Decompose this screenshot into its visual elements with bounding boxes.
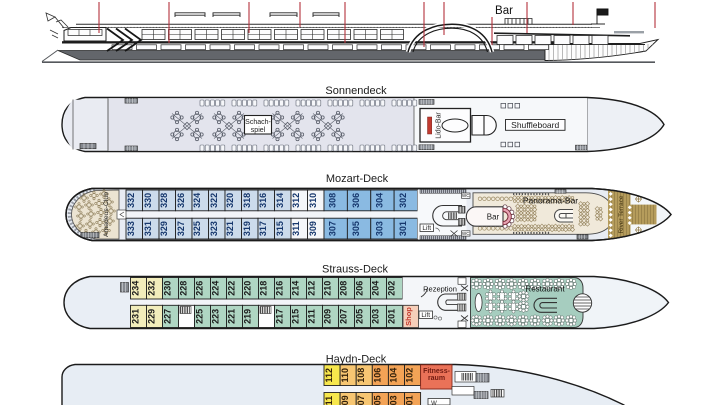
svg-text:104: 104 [388, 368, 398, 383]
svg-text:327: 327 [176, 221, 186, 236]
svg-text:310: 310 [308, 193, 318, 208]
svg-text:328: 328 [159, 193, 169, 208]
svg-text:Rezeption: Rezeption [423, 284, 457, 293]
svg-text:218: 218 [259, 281, 269, 296]
svg-text:103: 103 [388, 395, 398, 405]
svg-text:Shuffleboard: Shuffleboard [511, 120, 559, 130]
svg-text:Bar: Bar [487, 213, 500, 222]
svg-text:224: 224 [211, 281, 221, 296]
svg-text:Restaurant: Restaurant [525, 285, 565, 294]
svg-text:223: 223 [211, 309, 221, 324]
svg-text:208: 208 [339, 281, 349, 296]
svg-text:305: 305 [351, 221, 361, 236]
svg-text:220: 220 [243, 281, 253, 296]
svg-text:214: 214 [291, 281, 301, 296]
svg-text:230: 230 [163, 281, 173, 296]
svg-text:333: 333 [126, 221, 136, 236]
svg-text:raum: raum [428, 375, 445, 382]
svg-text:101: 101 [405, 395, 415, 405]
svg-text:322: 322 [209, 193, 219, 208]
svg-text:Amadeus-Club: Amadeus-Club [103, 192, 110, 237]
svg-text:234: 234 [131, 281, 141, 296]
svg-text:323: 323 [209, 221, 219, 236]
svg-text:205: 205 [355, 309, 365, 324]
svg-text:325: 325 [192, 221, 202, 236]
svg-text:Lido-Bar: Lido-Bar [436, 112, 443, 139]
svg-text:315: 315 [275, 221, 285, 236]
svg-text:324: 324 [192, 193, 202, 208]
svg-text:302: 302 [398, 193, 408, 208]
svg-text:210: 210 [323, 281, 333, 296]
svg-text:221: 221 [227, 309, 237, 324]
svg-text:304: 304 [374, 193, 384, 208]
svg-text:332: 332 [126, 193, 136, 208]
svg-text:102: 102 [405, 368, 415, 383]
svg-text:Schach-: Schach- [245, 119, 271, 126]
svg-text:Shop: Shop [404, 307, 413, 326]
svg-text:329: 329 [159, 221, 169, 236]
svg-text:Sonnendeck: Sonnendeck [325, 85, 387, 97]
svg-text:301: 301 [398, 221, 408, 236]
svg-text:311: 311 [291, 221, 301, 236]
svg-text:212: 212 [307, 281, 317, 296]
svg-text:WC: WC [462, 231, 470, 236]
svg-text:108: 108 [356, 368, 366, 383]
svg-text:105: 105 [372, 395, 382, 405]
svg-text:203: 203 [371, 309, 381, 324]
svg-text:Strauss-Deck: Strauss-Deck [322, 264, 389, 276]
svg-text:WC: WC [462, 193, 470, 198]
svg-text:314: 314 [275, 193, 285, 208]
svg-text:Fitness-: Fitness- [423, 368, 451, 375]
svg-text:231: 231 [131, 309, 141, 324]
svg-text:Panorama-Bar: Panorama-Bar [523, 196, 578, 206]
svg-text:Lift: Lift [422, 225, 431, 232]
svg-text:330: 330 [143, 193, 153, 208]
svg-text:109: 109 [340, 395, 350, 405]
svg-text:321: 321 [225, 221, 235, 236]
svg-text:209: 209 [323, 309, 333, 324]
svg-text:307: 307 [328, 221, 338, 236]
svg-text:107: 107 [356, 395, 366, 405]
svg-text:232: 232 [147, 281, 157, 296]
svg-text:317: 317 [258, 221, 268, 236]
svg-text:Lift: Lift [421, 312, 430, 319]
svg-text:spiel: spiel [251, 127, 266, 134]
svg-text:201: 201 [387, 309, 397, 324]
svg-text:228: 228 [179, 281, 189, 296]
svg-text:229: 229 [147, 309, 157, 324]
svg-text:331: 331 [143, 221, 153, 236]
svg-text:306: 306 [351, 193, 361, 208]
svg-text:227: 227 [163, 309, 173, 324]
svg-text:319: 319 [242, 221, 252, 236]
svg-text:Haydn-Deck: Haydn-Deck [326, 354, 387, 366]
svg-text:309: 309 [308, 221, 318, 236]
svg-text:222: 222 [227, 281, 237, 296]
svg-text:106: 106 [372, 368, 382, 383]
svg-text:225: 225 [195, 309, 205, 324]
svg-text:219: 219 [243, 309, 253, 324]
svg-text:308: 308 [328, 193, 338, 208]
svg-text:110: 110 [340, 368, 350, 383]
svg-text:320: 320 [225, 193, 235, 208]
svg-text:111: 111 [324, 396, 334, 405]
svg-text:W: W [431, 401, 437, 405]
svg-text:316: 316 [258, 193, 268, 208]
svg-text:202: 202 [387, 281, 397, 296]
svg-text:215: 215 [291, 309, 301, 324]
svg-text:312: 312 [291, 193, 301, 208]
svg-text:204: 204 [371, 281, 381, 296]
svg-text:Bar: Bar [495, 5, 513, 17]
svg-text:318: 318 [242, 193, 252, 208]
svg-text:112: 112 [324, 368, 334, 383]
svg-text:303: 303 [374, 221, 384, 236]
svg-text:River Terrace: River Terrace [618, 195, 625, 233]
svg-text:326: 326 [176, 193, 186, 208]
svg-text:211: 211 [307, 309, 317, 324]
svg-text:206: 206 [355, 281, 365, 296]
svg-text:217: 217 [275, 309, 285, 324]
svg-text:226: 226 [195, 281, 205, 296]
svg-text:Mozart-Deck: Mozart-Deck [326, 173, 389, 185]
svg-text:207: 207 [339, 309, 349, 324]
svg-text:216: 216 [275, 281, 285, 296]
